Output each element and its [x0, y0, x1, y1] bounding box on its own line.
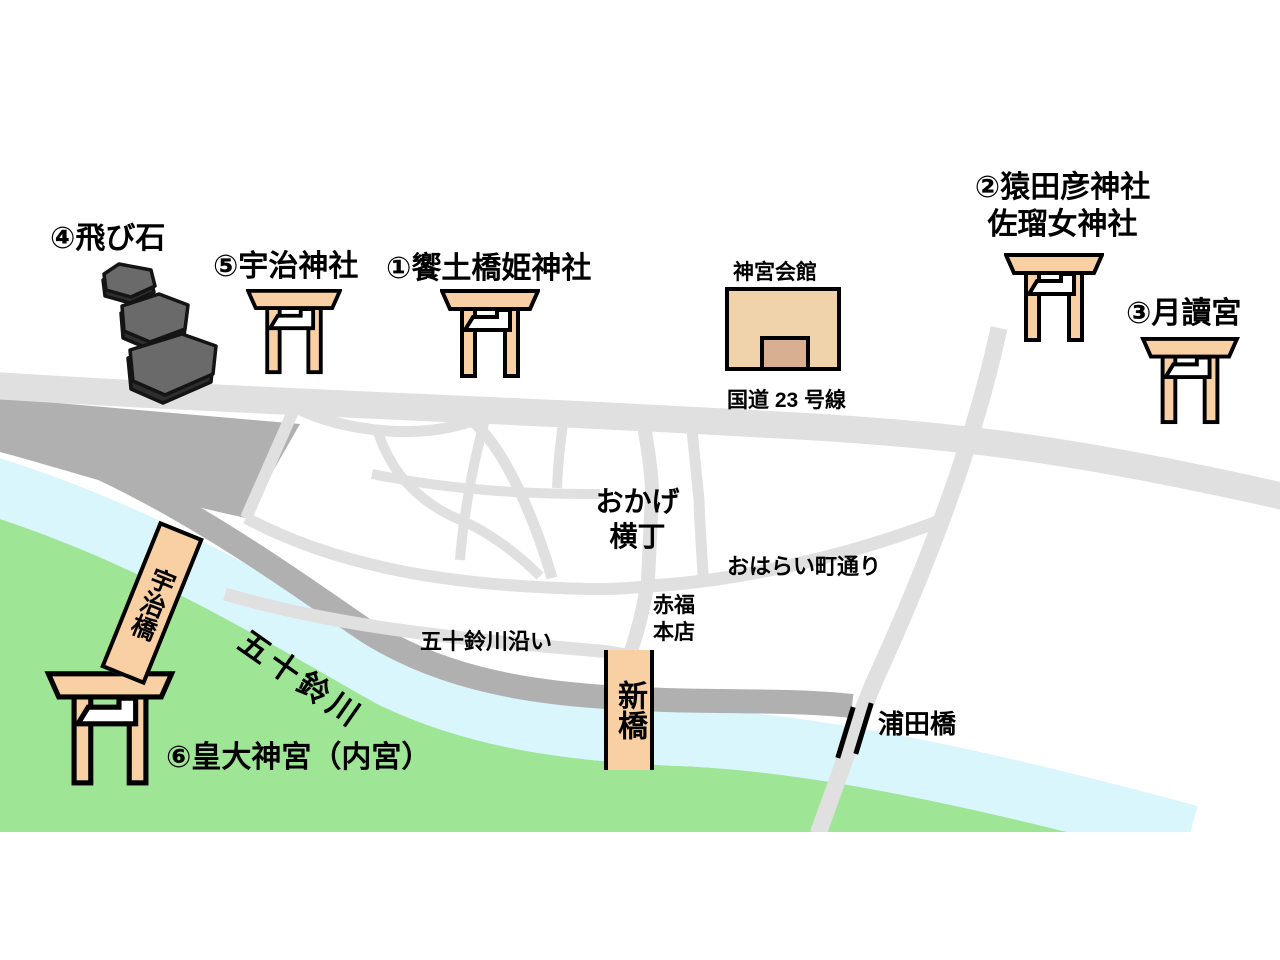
torii-icon-uji-jinja — [248, 291, 340, 372]
label-tobiishi: ④飛び石 — [50, 222, 165, 257]
label-uji-jinja: ⑤宇治神社 — [213, 250, 358, 285]
jingu-kaikan-building-icon — [727, 289, 839, 369]
label-kotai-jingu: ⑥皇大神宮（内宮） — [166, 741, 431, 776]
label-route23: 国道 23 号線 — [727, 389, 846, 413]
label-akafuku-line2: 本店 — [653, 619, 695, 646]
shin-bridge-icon: 新橋 — [604, 650, 654, 770]
label-sarutahiko-line1: ②猿田彦神社 — [955, 170, 1170, 207]
label-urata-bridge: 浦田橋 — [878, 710, 956, 740]
label-aedo-hashihime: ①饗土橋姫神社 — [386, 252, 591, 287]
label-sarutahiko-sarume: ②猿田彦神社 佐瑠女神社 — [955, 170, 1170, 244]
torii-icon-tsukiyomi — [1143, 339, 1237, 422]
label-akafuku-line1: 赤福 — [653, 592, 695, 619]
ise-area-map: 宇治橋 新橋 ④飛び石 ⑤宇治神社 ①饗土橋姫神社 神宮会館 国道 23 号線 … — [0, 0, 1280, 960]
map-canvas — [0, 0, 1280, 960]
label-okage-yokocho: おかげ 横丁 — [570, 484, 705, 554]
label-okage-line2: 横丁 — [570, 519, 705, 554]
label-isuzu-riverside: 五十鈴川沿い — [420, 629, 552, 654]
street-horizontal — [372, 474, 600, 494]
label-jingu-kaikan: 神宮会館 — [733, 261, 817, 285]
torii-icon-aedo-hashihime — [442, 291, 538, 376]
label-oharai-street: おはらい町通り — [727, 554, 881, 579]
label-sarume-line2: 佐瑠女神社 — [955, 207, 1170, 244]
label-tsukiyomi: ③月讀宮 — [1126, 297, 1241, 332]
terrain-layer — [0, 328, 1280, 900]
label-akafuku: 赤福 本店 — [653, 592, 695, 647]
shin-bridge-label: 新橋 — [607, 680, 651, 740]
torii-icon-sarutahiko — [1006, 255, 1102, 340]
label-okage-line1: おかげ — [570, 484, 705, 519]
